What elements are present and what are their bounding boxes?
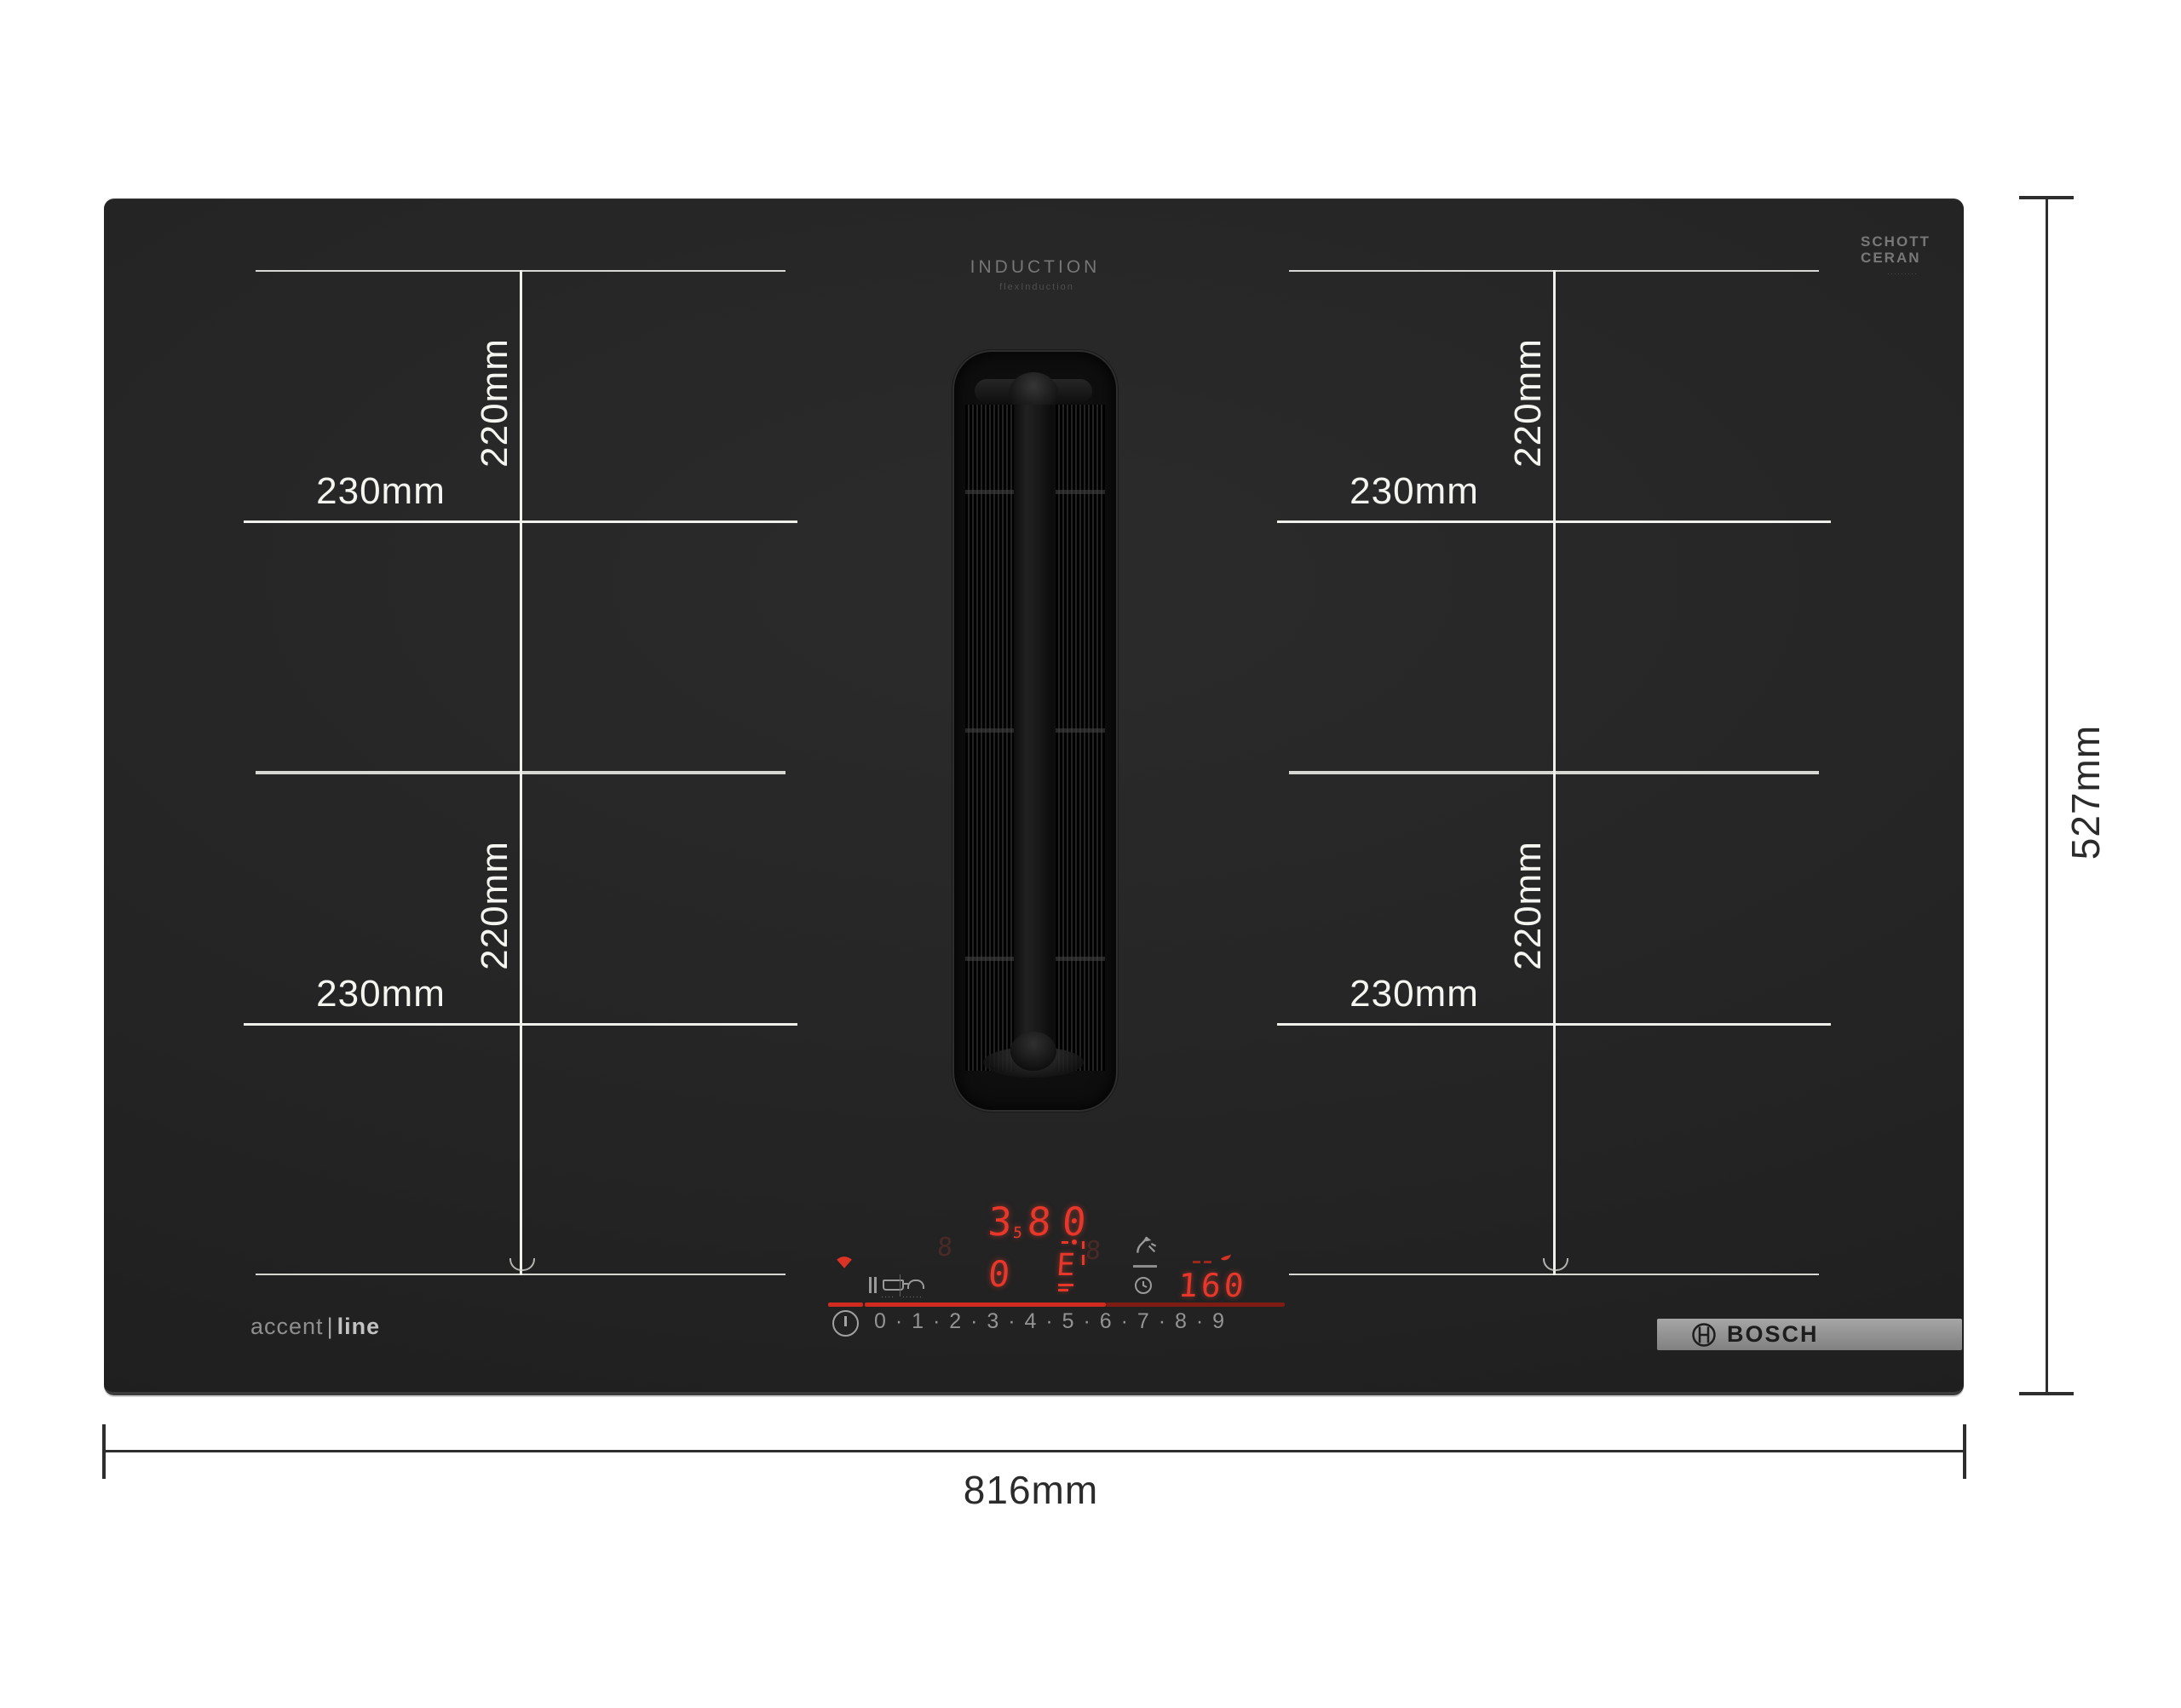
frying-sensor-sublabel: ···· xyxy=(881,1292,895,1301)
ceran-line: CERAN xyxy=(1861,250,1931,266)
cooking-zone-top-right[interactable]: 230mm 220mm xyxy=(1277,270,1831,773)
display-level-3: 0 xyxy=(1061,1199,1087,1245)
separator-dash xyxy=(1133,1265,1157,1268)
schott-line: SCHOTT xyxy=(1861,233,1931,250)
zone-width-label: 230mm xyxy=(316,973,446,1015)
touch-control-panel[interactable]: 8 8 3 5 8 0 0 E ···· xyxy=(818,1193,1414,1381)
zone-width-label: 230mm xyxy=(316,470,446,513)
zone-center-line-vertical xyxy=(520,270,522,773)
fan-boost-icon xyxy=(1218,1253,1234,1267)
display-level-2: 8 xyxy=(1026,1199,1052,1245)
height-dimension-label: 527mm xyxy=(2063,725,2109,860)
bosch-anchor-icon xyxy=(1691,1322,1717,1348)
home-connect-wifi-icon[interactable] xyxy=(832,1248,857,1274)
cooking-zone-top-left[interactable]: 230mm 220mm xyxy=(244,270,797,773)
power-button[interactable] xyxy=(832,1310,859,1337)
product-dimension-diagram: INDUCTION flexInduction SCHOTT CERAN ···… xyxy=(0,0,2181,1708)
vent-center-bar xyxy=(1014,405,1053,1057)
accent-label: accent xyxy=(250,1314,324,1339)
zone-center-line-vertical xyxy=(1553,773,1556,1275)
zone-width-label: 230mm xyxy=(1349,470,1479,513)
ghost-display-digit: 8 xyxy=(936,1233,954,1262)
power-slider[interactable] xyxy=(865,1303,1106,1307)
width-dimension-cap-right xyxy=(1963,1424,1966,1479)
filter-indicator-glyph: E xyxy=(1056,1241,1094,1292)
move-mode-sublabel: ······ xyxy=(902,1292,923,1301)
zone-height-label: 220mm xyxy=(1507,338,1550,468)
power-level-scale[interactable]: 0 · 1 · 2 · 3 · 4 · 5 · 6 · 7 · 8 · 9 xyxy=(874,1309,1215,1334)
pause-icon[interactable] xyxy=(874,1277,877,1293)
move-mode-icon[interactable] xyxy=(907,1280,924,1289)
width-dimension-line xyxy=(104,1450,1966,1452)
display-level-bottom: 0 xyxy=(987,1253,1011,1295)
induction-hob-glass: INDUCTION flexInduction SCHOTT CERAN ···… xyxy=(104,198,1964,1395)
zone-center-line-vertical xyxy=(1553,270,1556,773)
schott-ceran-logo: SCHOTT CERAN xyxy=(1861,233,1931,266)
pause-icon[interactable] xyxy=(869,1277,872,1293)
pan-position-mark xyxy=(1543,1258,1568,1271)
zone-width-label: 230mm xyxy=(1349,973,1479,1015)
pan-position-mark xyxy=(509,1258,535,1271)
zone-center-line-vertical xyxy=(520,773,522,1275)
timer-clock-icon[interactable] xyxy=(1133,1275,1154,1296)
vent-grille-right xyxy=(1056,405,1105,1071)
zone-height-label: 220mm xyxy=(474,841,516,970)
zone-height-label: 220mm xyxy=(1507,841,1550,970)
vent-grille-left xyxy=(965,405,1015,1071)
cooking-zone-bottom-left[interactable]: 230mm 220mm xyxy=(244,773,797,1275)
accentline-divider: | xyxy=(324,1314,337,1339)
width-dimension-label: 816mm xyxy=(964,1467,1098,1513)
vent-bottom-knob xyxy=(1010,1032,1056,1071)
display-level-main: 3 xyxy=(987,1199,1013,1245)
schott-ceran-subtext: ········· xyxy=(1887,269,1918,278)
induction-print-sub: flexInduction xyxy=(999,282,1074,292)
width-dimension-cap-left xyxy=(102,1424,106,1479)
height-dimension-line xyxy=(2046,198,2048,1395)
height-dimension-cap-top xyxy=(2019,196,2074,199)
downdraft-vent-module[interactable] xyxy=(952,350,1118,1112)
bosch-logo-text: BOSCH xyxy=(1727,1321,1819,1348)
power-slider-segment[interactable] xyxy=(828,1303,863,1307)
display-level-half: 5 xyxy=(1012,1224,1022,1242)
icon-divider xyxy=(900,1274,901,1297)
timer-display[interactable]: 160 xyxy=(1177,1267,1248,1304)
line-label: line xyxy=(337,1314,381,1339)
zone-height-label: 220mm xyxy=(474,338,516,468)
height-dimension-cap-bottom xyxy=(2019,1392,2074,1395)
frying-sensor-icon[interactable] xyxy=(883,1280,904,1291)
accentline-series-label: accent|line xyxy=(250,1314,380,1340)
auto-vent-icon[interactable] xyxy=(1133,1229,1160,1258)
bosch-badge: BOSCH xyxy=(1657,1319,1962,1350)
induction-print-label: INDUCTION xyxy=(970,257,1101,278)
